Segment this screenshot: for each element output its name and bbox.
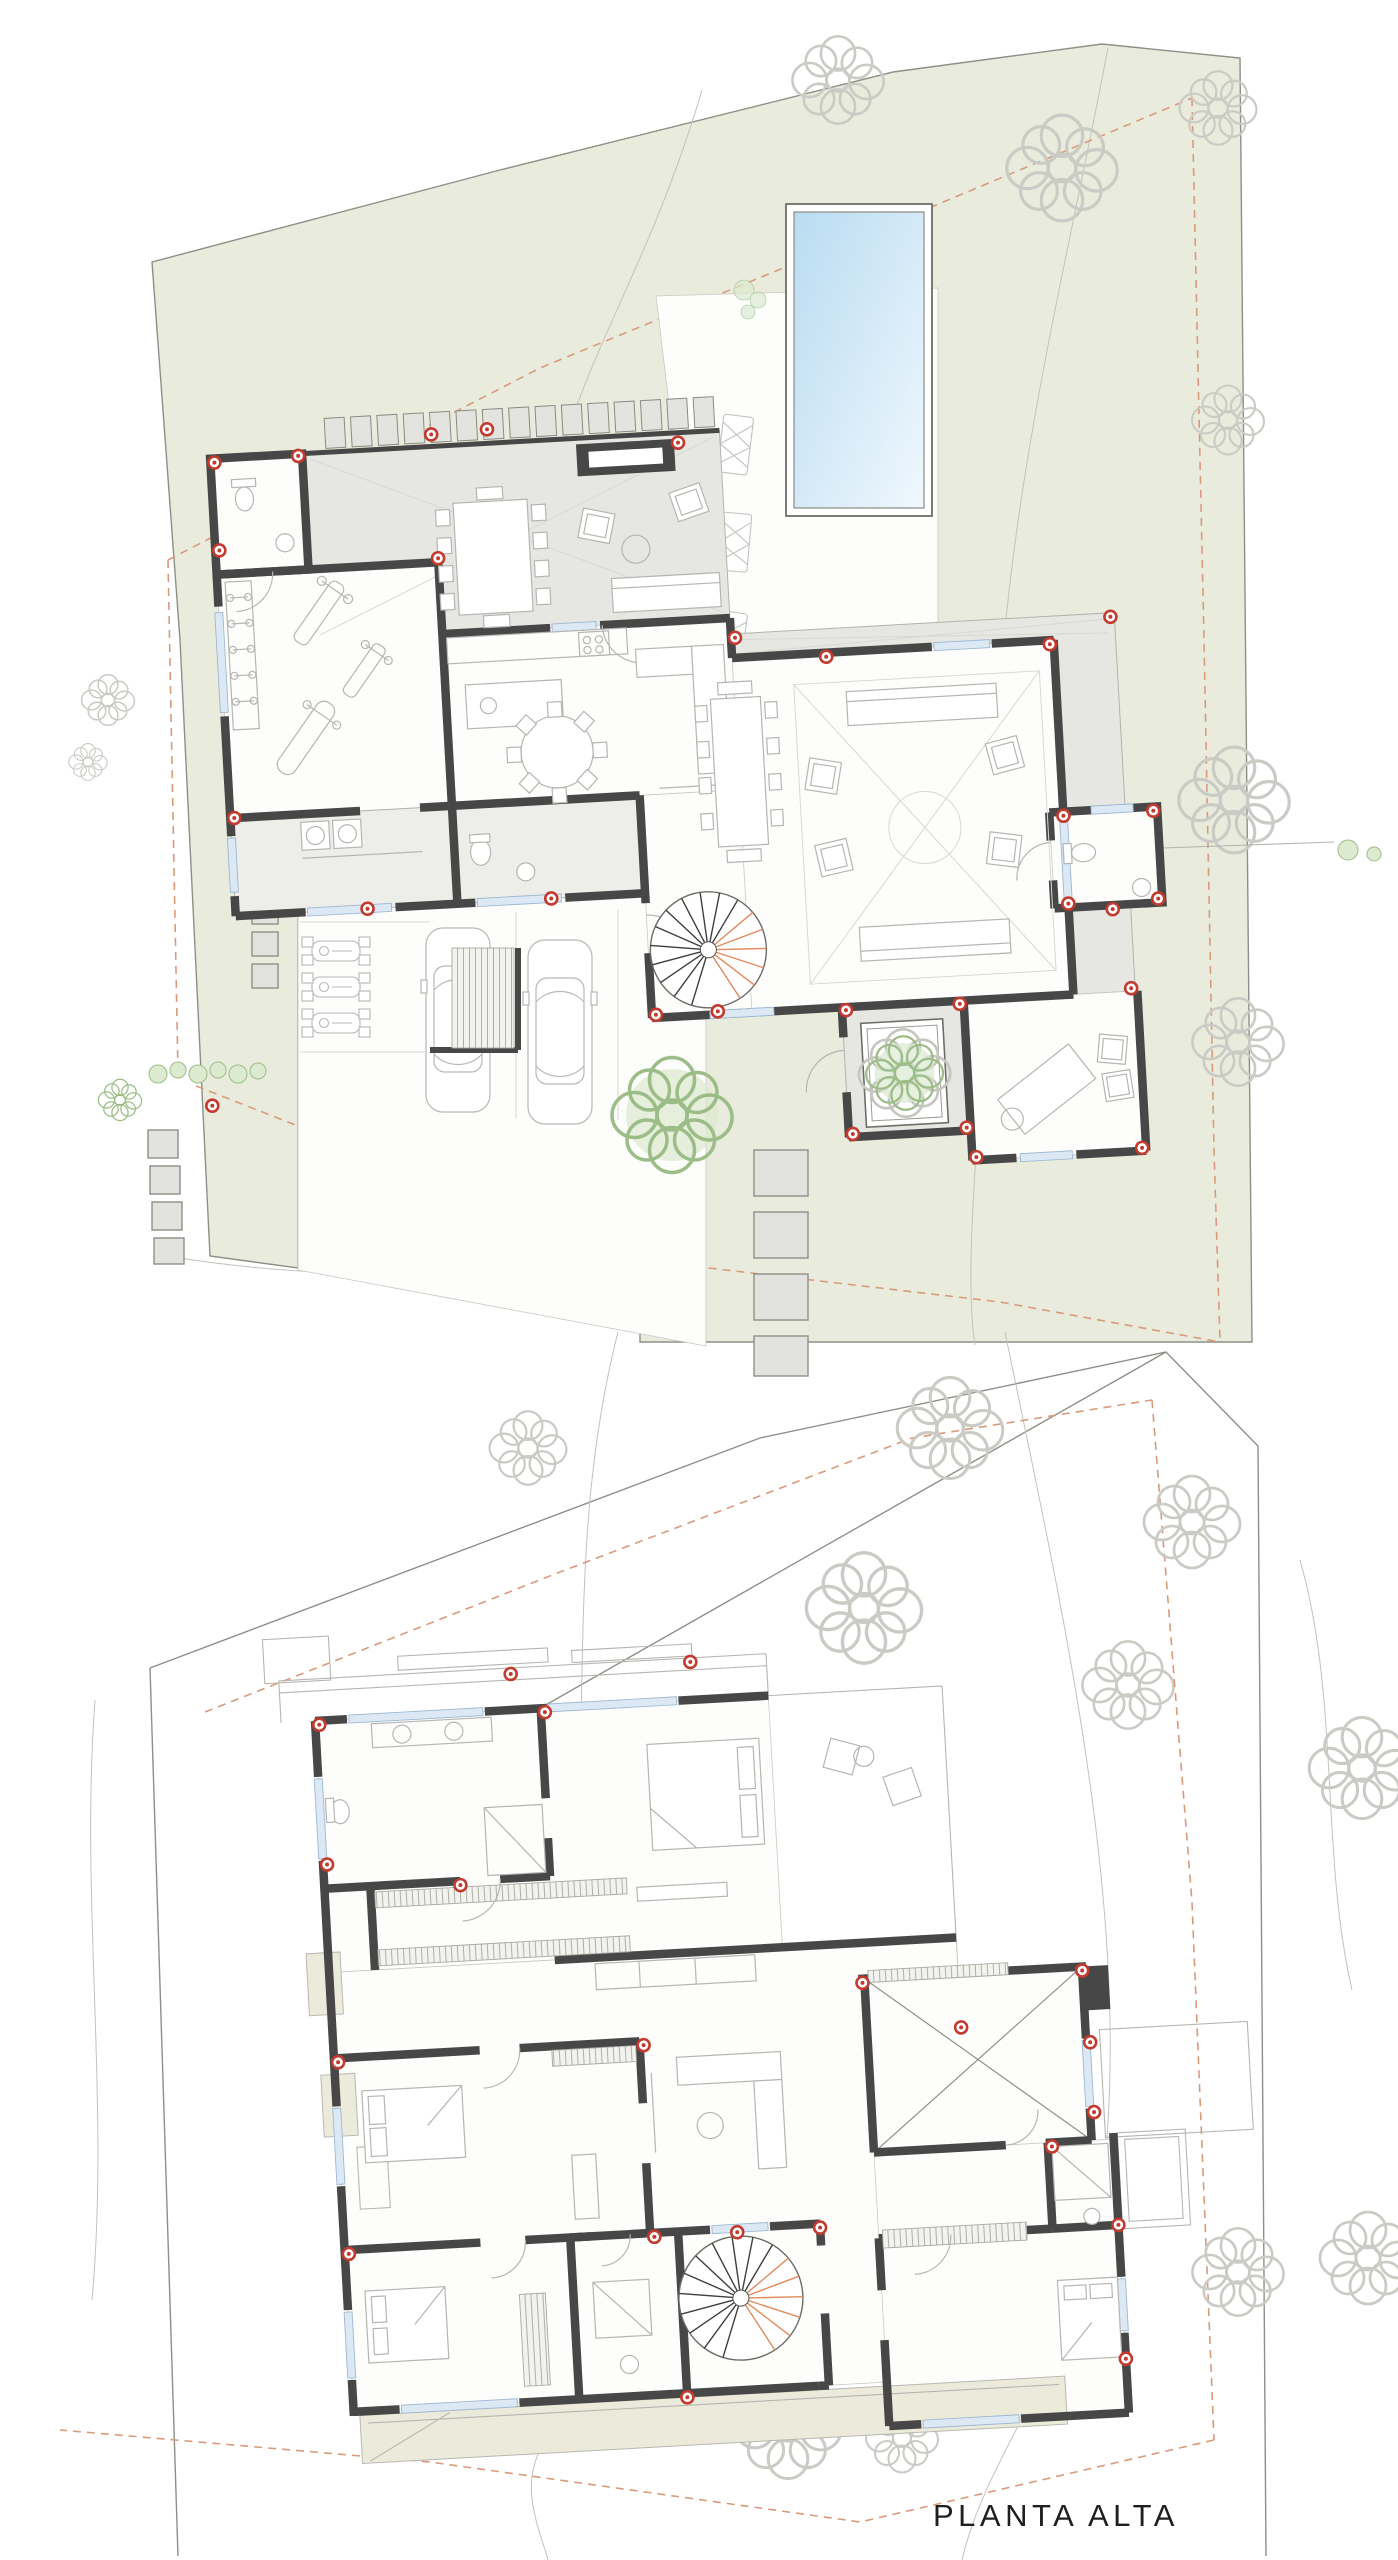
column-marker-icon <box>1125 982 1138 995</box>
column-marker-icon <box>1044 638 1057 651</box>
column-marker-icon <box>208 456 221 469</box>
column-marker-icon <box>1152 892 1165 905</box>
entry-bathroom-floor <box>210 454 308 575</box>
column-marker-icon <box>729 631 742 644</box>
column-marker-icon <box>432 552 445 565</box>
column-marker-icon <box>313 1718 326 1731</box>
column-marker-icon <box>970 1151 983 1164</box>
column-marker-icon <box>425 428 438 441</box>
column-marker-icon <box>1046 2140 1059 2153</box>
column-marker-icon <box>321 1858 334 1871</box>
terrace-fireplace <box>576 439 676 476</box>
garage-motorbikes <box>302 937 370 1037</box>
column-marker-icon <box>847 1128 860 1141</box>
column-marker-icon <box>1088 2106 1101 2119</box>
column-marker-icon <box>361 902 374 915</box>
bedroom3-furniture <box>365 2287 449 2363</box>
column-marker-icon <box>1076 1964 1089 1977</box>
column-marker-icon <box>1120 2352 1133 2365</box>
column-marker-icon <box>504 1668 517 1681</box>
column-marker-icon <box>820 650 833 663</box>
east-hedge <box>1338 840 1381 861</box>
column-marker-icon <box>840 1004 853 1017</box>
column-marker-icon <box>681 2391 694 2404</box>
garage-steps <box>452 948 514 1048</box>
column-marker-icon <box>343 2248 356 2261</box>
column-marker-icon <box>637 2039 650 2052</box>
column-marker-icon <box>960 1121 973 1134</box>
column-marker-icon <box>1057 809 1070 822</box>
upper-floor-label: PLANTA ALTA <box>933 2498 1233 2534</box>
column-marker-icon <box>292 450 305 463</box>
ground-floor-site-plan <box>69 36 1381 1728</box>
column-marker-icon <box>1106 903 1119 916</box>
plan-sheet: PLANTA ALTA <box>0 0 1398 2560</box>
column-marker-icon <box>953 997 966 1010</box>
column-marker-icon <box>481 423 494 436</box>
column-marker-icon <box>206 1099 219 1112</box>
column-marker-icon <box>731 2226 744 2239</box>
column-marker-icon <box>672 436 685 449</box>
column-marker-icon <box>1136 1142 1149 1155</box>
column-marker-icon <box>454 1879 467 1892</box>
column-marker-icon <box>650 1008 663 1021</box>
column-marker-icon <box>856 1976 869 1989</box>
column-marker-icon <box>1112 2219 1125 2232</box>
upper-floor-plan <box>60 1332 1398 2560</box>
column-marker-icon <box>711 1005 724 1018</box>
bedroom4-furniture <box>1057 2277 1121 2360</box>
column-marker-icon <box>1147 804 1160 817</box>
column-marker-icon <box>213 544 226 557</box>
column-marker-icon <box>955 2021 968 2034</box>
column-marker-icon <box>545 892 558 905</box>
column-marker-icon <box>814 2221 827 2234</box>
column-marker-icon <box>648 2231 661 2244</box>
column-marker-icon <box>1084 2036 1097 2049</box>
upper-floor-building <box>262 1586 1269 2466</box>
column-marker-icon <box>1062 897 1075 910</box>
column-marker-icon <box>539 1706 552 1719</box>
column-marker-icon <box>228 812 241 825</box>
column-marker-icon <box>684 1656 697 1669</box>
courtyard-planter <box>856 1019 953 1128</box>
column-marker-icon <box>332 2056 345 2069</box>
swimming-pool <box>786 204 932 516</box>
column-marker-icon <box>1104 610 1117 623</box>
floor-plan-canvas <box>0 0 1398 2560</box>
roof-terrace-seating <box>822 1733 922 1809</box>
